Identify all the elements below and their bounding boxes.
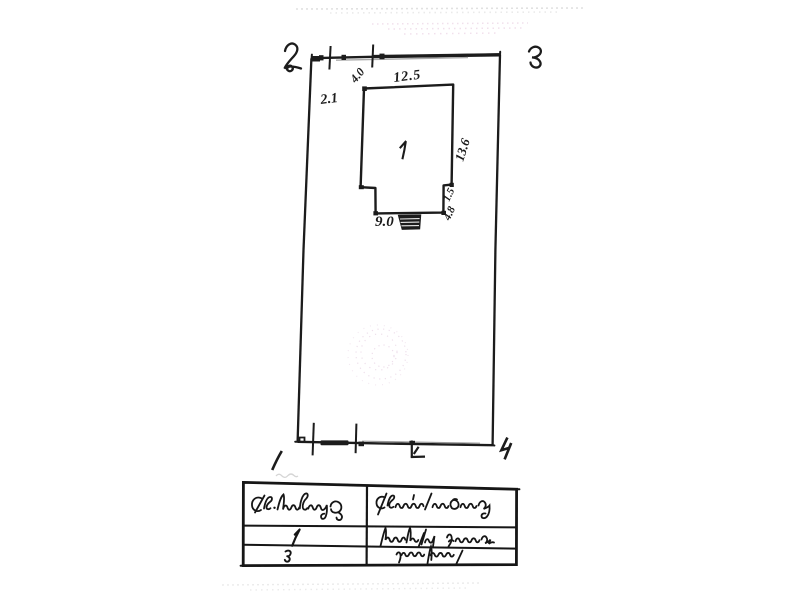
svg-text:9.0: 9.0 xyxy=(375,214,394,230)
svg-text:2.1: 2.1 xyxy=(319,91,339,108)
